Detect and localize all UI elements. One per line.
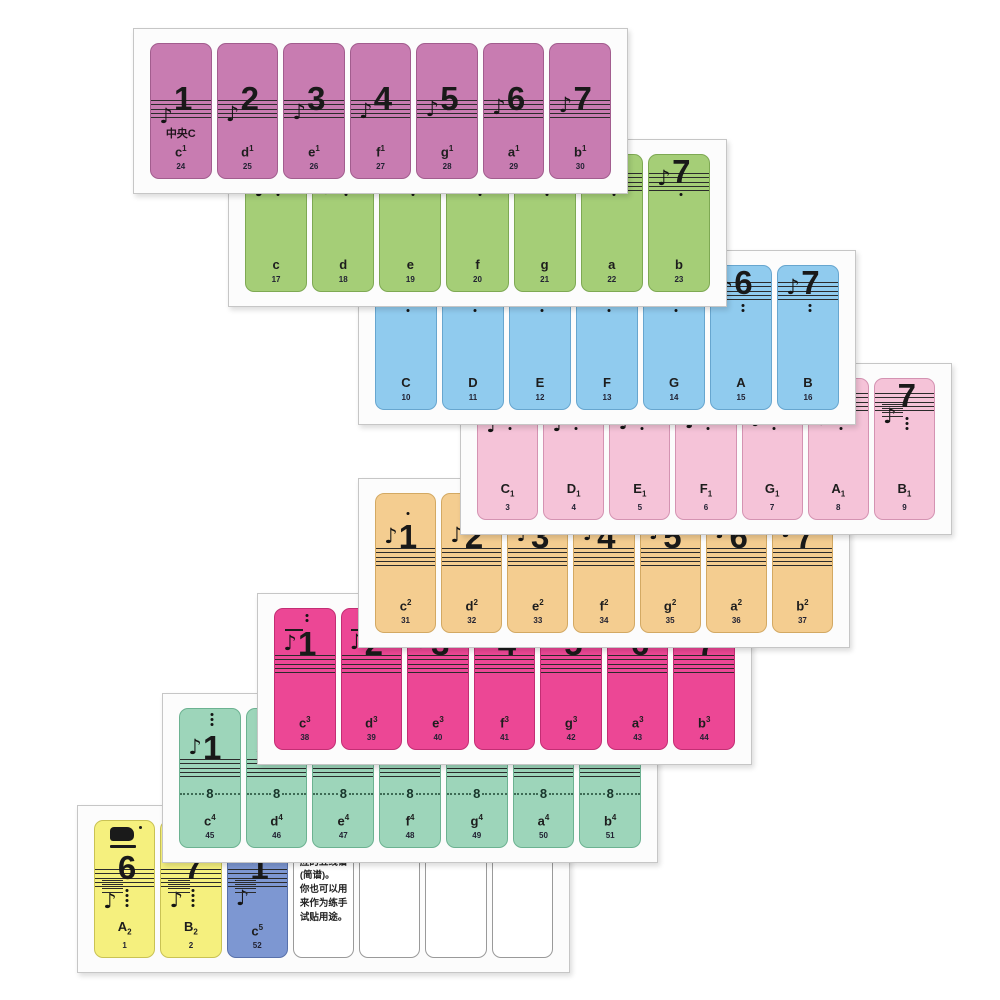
- staff-line: [313, 772, 373, 773]
- ledger-line: [882, 416, 903, 417]
- note-letter: c: [251, 923, 258, 938]
- staff-line: [408, 668, 468, 669]
- staff-line: [574, 561, 633, 562]
- key-number: 24: [151, 163, 211, 171]
- note-letter: a: [730, 598, 737, 613]
- key-number: 44: [674, 734, 734, 742]
- note-octave-script: 1: [708, 490, 712, 499]
- note-name: e3: [408, 716, 468, 729]
- ottava-dash-right: [482, 793, 506, 795]
- note-name: d3: [342, 716, 402, 729]
- note-name: c3: [275, 716, 335, 729]
- jianpu-number: 7: [573, 82, 591, 115]
- note-name: B2: [161, 920, 220, 937]
- staff-line: [641, 561, 700, 562]
- brand-logo-mark: [110, 827, 134, 841]
- note-octave-script: 1: [315, 144, 319, 153]
- note-octave-script: 1: [249, 144, 253, 153]
- ledger-line: [168, 888, 189, 889]
- note-octave-script: 3: [306, 715, 310, 724]
- note-letter: a: [508, 144, 515, 159]
- octave-dot: [575, 427, 578, 430]
- key-number: 17: [246, 276, 306, 284]
- key-number: 48: [380, 832, 440, 840]
- staff-line: [541, 672, 601, 673]
- key-sticker: 7♪B19: [874, 378, 935, 520]
- key-number: 11: [443, 394, 503, 402]
- octave-dot: [742, 304, 745, 307]
- octave-dots: [742, 304, 745, 312]
- product-photo-canvas: 1♪中央Cc1242♪d1253♪e1264♪f1275♪g1286♪a1297…: [0, 0, 1000, 1000]
- note-octave-script: 3: [504, 715, 508, 724]
- octave-dots: [211, 713, 214, 726]
- key-sticker: 7♪b130: [549, 43, 611, 179]
- ottava-8-marker: 8: [380, 787, 440, 800]
- staff-line: [773, 565, 832, 566]
- ottava-dash-left: [247, 793, 271, 795]
- key-sticker: 5♪g128: [416, 43, 478, 179]
- staff-line: [275, 664, 335, 665]
- note-octave-script: 3: [639, 715, 643, 724]
- jianpu-number: 5: [440, 82, 458, 115]
- note-letter: b: [675, 257, 683, 272]
- key-number: 2: [161, 942, 220, 950]
- note-name: A: [711, 376, 771, 389]
- staff-line: [773, 561, 832, 562]
- note-name: a1: [484, 145, 544, 158]
- ottava-8-marker: 8: [247, 787, 307, 800]
- note-octave-script: 3: [439, 715, 443, 724]
- jianpu-number: 1: [203, 731, 221, 764]
- note-octave-script: 1: [841, 490, 845, 499]
- key-number: 39: [342, 734, 402, 742]
- key-number: 46: [247, 832, 307, 840]
- note-name: A2: [95, 920, 154, 937]
- note-letter: d: [241, 144, 249, 159]
- note-letter: D: [567, 481, 576, 496]
- note-name: E1: [610, 482, 669, 499]
- staff-line: [508, 565, 567, 566]
- note-octave-script: 1: [642, 490, 646, 499]
- note-octave-script: 3: [573, 715, 577, 724]
- key-sticker: 3♪e126: [283, 43, 345, 179]
- staff-line: [508, 557, 567, 558]
- note-letter: b: [604, 813, 612, 828]
- key-sticker: 1♪8c445: [179, 708, 241, 848]
- note-name: b3: [674, 716, 734, 729]
- octave-dot: [306, 619, 309, 622]
- note-octave-script: 1: [515, 144, 519, 153]
- staff-line: [380, 768, 440, 769]
- note-name: F1: [676, 482, 735, 499]
- ledger-line: [102, 892, 123, 893]
- ottava-8-marker: 8: [580, 787, 640, 800]
- note-letter: A: [118, 919, 127, 934]
- ottava-8-marker: 8: [180, 787, 240, 800]
- note-letter: e: [407, 257, 414, 272]
- note-octave-script: 3: [706, 715, 710, 724]
- note-name: e: [380, 258, 440, 271]
- note-letter: a: [632, 715, 639, 730]
- octave-dot: [839, 427, 842, 430]
- note-letter: c: [272, 257, 279, 272]
- note-name: c1: [151, 145, 211, 158]
- octave-dot: [126, 889, 129, 892]
- key-number: 37: [773, 617, 832, 625]
- note-name: f: [447, 258, 507, 271]
- staff-line: [514, 768, 574, 769]
- note-name: c2: [376, 599, 435, 612]
- staff-line: [475, 668, 535, 669]
- eighth-note-icon: ♪: [359, 101, 372, 122]
- ottava-number: 8: [607, 787, 614, 800]
- octave-dot: [905, 427, 908, 430]
- note-name: d: [313, 258, 373, 271]
- note-name: b4: [580, 814, 640, 827]
- jianpu-number: 7: [672, 155, 690, 188]
- eighth-note-icon: ♪: [426, 99, 439, 120]
- octave-dot: [306, 614, 309, 617]
- note-octave-script: 2: [407, 598, 411, 607]
- staff-line: [707, 561, 766, 562]
- note-name: G: [644, 376, 704, 389]
- key-number: 34: [574, 617, 633, 625]
- key-number: 21: [515, 276, 575, 284]
- note-name: b: [649, 258, 709, 271]
- staff-line: [508, 561, 567, 562]
- key-number: 10: [376, 394, 436, 402]
- eighth-note-icon: ♪: [384, 526, 397, 547]
- note-letter: b: [574, 144, 582, 159]
- ottava-dash-left: [180, 793, 204, 795]
- ottava-dash-left: [447, 793, 471, 795]
- ottava-number: 8: [206, 787, 213, 800]
- key-number: 33: [508, 617, 567, 625]
- note-letter: A: [736, 375, 745, 390]
- note-name: f2: [574, 599, 633, 612]
- note-letter: C: [401, 375, 410, 390]
- staff-line: [649, 190, 709, 191]
- staff-line: [674, 668, 734, 669]
- octave-dots: [126, 889, 129, 907]
- note-octave-script: 1: [582, 144, 586, 153]
- staff-line: [442, 561, 501, 562]
- octave-dot: [126, 904, 129, 907]
- ledger-line: [168, 892, 189, 893]
- octave-dot: [211, 723, 214, 726]
- ledger-line: [102, 880, 123, 881]
- instruction-line: 来作为练手: [300, 897, 348, 911]
- staff-line: [180, 772, 240, 773]
- note-letter: d: [339, 257, 347, 272]
- note-letter: a: [608, 257, 615, 272]
- staff-line: [380, 776, 440, 777]
- note-octave-script: 4: [612, 813, 616, 822]
- note-letter: a: [538, 813, 545, 828]
- staff-line: [574, 565, 633, 566]
- key-number: 18: [313, 276, 373, 284]
- staff-line: [275, 672, 335, 673]
- note-name: g1: [417, 145, 477, 158]
- note-letter: B: [184, 919, 193, 934]
- brand-logo-icon: [108, 826, 142, 848]
- note-name: g4: [447, 814, 507, 827]
- instruction-line: 试贴用途。: [300, 911, 348, 925]
- note-octave-script: 4: [211, 813, 215, 822]
- note-name: e4: [313, 814, 373, 827]
- key-number: 19: [380, 276, 440, 284]
- note-name: f4: [380, 814, 440, 827]
- key-number: 50: [514, 832, 574, 840]
- sticker-sheet-1: 1♪中央Cc1242♪d1253♪e1264♪f1275♪g1286♪a1297…: [133, 28, 628, 194]
- note-octave-script: 4: [478, 813, 482, 822]
- note-name: C1: [478, 482, 537, 499]
- jianpu-number: 6: [734, 266, 752, 299]
- staff-line: [376, 561, 435, 562]
- ottava-number: 8: [340, 787, 347, 800]
- staff-line: [313, 776, 373, 777]
- note-name: a: [582, 258, 642, 271]
- note-octave-script: 3: [373, 715, 377, 724]
- key-number: 27: [351, 163, 411, 171]
- octave-dot: [773, 427, 776, 430]
- staff-line: [247, 772, 307, 773]
- note-octave-script: 2: [473, 598, 477, 607]
- note-name: d1: [218, 145, 278, 158]
- key-number: 40: [408, 734, 468, 742]
- jianpu-number: 3: [307, 82, 325, 115]
- staff-line: [180, 768, 240, 769]
- staff-line: [608, 668, 668, 669]
- note-letter: g: [441, 144, 449, 159]
- jianpu-number: 4: [374, 82, 392, 115]
- key-number: 41: [475, 734, 535, 742]
- staff-line: [674, 672, 734, 673]
- octave-dots: [192, 889, 195, 907]
- key-number: 12: [510, 394, 570, 402]
- note-octave-script: 1: [510, 490, 514, 499]
- note-octave-script: 2: [804, 598, 808, 607]
- note-letter: g: [541, 257, 549, 272]
- note-name: a3: [608, 716, 668, 729]
- key-number: 26: [284, 163, 344, 171]
- eighth-note-icon: ♪: [657, 168, 670, 189]
- key-number: 30: [550, 163, 610, 171]
- note-letter: E: [536, 375, 545, 390]
- note-octave-script: 2: [604, 598, 608, 607]
- note-name: D1: [544, 482, 603, 499]
- key-number: 1: [95, 942, 154, 950]
- note-name: c5: [228, 924, 287, 937]
- staff-line: [514, 772, 574, 773]
- octave-dot: [680, 193, 683, 196]
- staff-line: [447, 776, 507, 777]
- octave-dot: [809, 309, 812, 312]
- note-name: a4: [514, 814, 574, 827]
- staff-line: [342, 668, 402, 669]
- note-octave-script: 1: [907, 490, 911, 499]
- note-letter: g: [664, 598, 672, 613]
- note-letter: c: [400, 598, 407, 613]
- jianpu-number: 7: [801, 266, 819, 299]
- staff-line: [641, 565, 700, 566]
- ottava-dash-right: [616, 793, 640, 795]
- note-letter: e: [337, 813, 344, 828]
- ottava-dash-right: [349, 793, 373, 795]
- key-number: 47: [313, 832, 373, 840]
- key-number: 5: [610, 504, 669, 512]
- key-sticker: 1♪中央Cc124: [150, 43, 212, 179]
- octave-dot: [742, 309, 745, 312]
- key-number: 22: [582, 276, 642, 284]
- note-letter: g: [565, 715, 573, 730]
- eighth-note-icon: ♪: [283, 633, 296, 654]
- staff-line: [247, 776, 307, 777]
- note-letter: f: [475, 257, 479, 272]
- note-octave-script: 2: [127, 928, 131, 937]
- staff-line: [376, 557, 435, 558]
- note-letter: A: [831, 481, 840, 496]
- note-letter: F: [700, 481, 708, 496]
- jianpu-number: 1: [399, 520, 417, 553]
- note-name: c4: [180, 814, 240, 827]
- note-octave-script: 1: [449, 144, 453, 153]
- staff-line: [447, 768, 507, 769]
- key-sticker: 7♪b23: [648, 154, 710, 292]
- key-number: 36: [707, 617, 766, 625]
- octave-dot: [608, 309, 611, 312]
- middle-c-label: 中央C: [151, 125, 211, 141]
- ledger-line: [102, 888, 123, 889]
- octave-dot: [675, 309, 678, 312]
- key-number: 13: [577, 394, 637, 402]
- key-number: 38: [275, 734, 335, 742]
- note-name: a2: [707, 599, 766, 612]
- ottava-number: 8: [273, 787, 280, 800]
- ottava-number: 8: [540, 787, 547, 800]
- eighth-note-icon: ♪: [292, 102, 305, 123]
- staff-line: [608, 664, 668, 665]
- eighth-note-icon: ♪: [559, 95, 572, 116]
- staff-line: [342, 664, 402, 665]
- key-number: 7: [743, 504, 802, 512]
- key-number: 4: [544, 504, 603, 512]
- ledger-line: [235, 888, 256, 889]
- key-number: 28: [417, 163, 477, 171]
- jianpu-number: 1: [174, 82, 192, 115]
- staff-line: [550, 117, 610, 118]
- note-name: f3: [475, 716, 535, 729]
- staff-line: [674, 664, 734, 665]
- octave-dot: [192, 894, 195, 897]
- key-sticker: 4♪f127: [350, 43, 412, 179]
- eighth-note-icon: ♪: [159, 106, 172, 127]
- ledger-line: [168, 884, 189, 885]
- octave-dot: [192, 889, 195, 892]
- staff-line: [408, 672, 468, 673]
- octave-dot: [541, 309, 544, 312]
- ledger-line: [882, 412, 903, 413]
- eighth-note-icon: ♪: [786, 277, 799, 298]
- staff-line: [447, 772, 507, 773]
- staff-line: [475, 664, 535, 665]
- ottava-dash-right: [282, 793, 306, 795]
- ottava-dash-right: [416, 793, 440, 795]
- octave-dots: [905, 417, 908, 430]
- ledger-lines: [102, 880, 123, 893]
- staff-line: [247, 768, 307, 769]
- note-letter: B: [803, 375, 812, 390]
- note-name: A1: [809, 482, 868, 499]
- ottava-8-marker: 8: [447, 787, 507, 800]
- eighth-note-icon: ♪: [226, 104, 239, 125]
- note-name: D: [443, 376, 503, 389]
- note-octave-script: 2: [672, 598, 676, 607]
- jianpu-number: 1: [298, 627, 316, 660]
- note-name: g3: [541, 716, 601, 729]
- note-letter: b: [796, 598, 804, 613]
- staff-line: [342, 672, 402, 673]
- octave-dots: [809, 304, 812, 312]
- octave-dot: [905, 422, 908, 425]
- note-name: B1: [875, 482, 934, 499]
- key-number: 20: [447, 276, 507, 284]
- eighth-note-icon: ♪: [103, 891, 116, 912]
- ledger-line: [882, 404, 903, 405]
- note-octave-script: 4: [410, 813, 414, 822]
- note-name: b2: [773, 599, 832, 612]
- ledger-lines: [882, 404, 903, 417]
- octave-dot: [126, 899, 129, 902]
- octave-dot: [126, 894, 129, 897]
- key-number: 16: [778, 394, 838, 402]
- eighth-note-icon: ♪: [492, 97, 505, 118]
- key-sticker: 2♪d125: [217, 43, 279, 179]
- ottava-8-marker: 8: [313, 787, 373, 800]
- staff-line: [574, 557, 633, 558]
- note-name: C: [376, 376, 436, 389]
- key-number: 14: [644, 394, 704, 402]
- instruction-line: 你也可以用: [300, 883, 348, 897]
- note-octave-script: 4: [345, 813, 349, 822]
- staff-line: [475, 672, 535, 673]
- ottava-dash-left: [514, 793, 538, 795]
- octave-dots: [406, 512, 409, 515]
- note-octave-script: 1: [775, 490, 779, 499]
- key-number: 51: [580, 832, 640, 840]
- note-octave-script: 4: [278, 813, 282, 822]
- note-letter: C: [501, 481, 510, 496]
- key-sticker: 6♪A21: [94, 820, 155, 958]
- staff-line: [313, 768, 373, 769]
- ottava-8-marker: 8: [514, 787, 574, 800]
- note-name: E: [510, 376, 570, 389]
- note-octave-script: 1: [380, 144, 384, 153]
- key-number: 3: [478, 504, 537, 512]
- staff-line: [275, 668, 335, 669]
- key-number: 25: [218, 163, 278, 171]
- note-letter: b: [698, 715, 706, 730]
- note-letter: G: [765, 481, 775, 496]
- staff-line: [580, 768, 640, 769]
- staff-line: [773, 557, 832, 558]
- staff-line: [541, 668, 601, 669]
- ledger-dash: [285, 629, 303, 631]
- staff-line: [376, 565, 435, 566]
- ledger-line: [168, 880, 189, 881]
- note-octave-script: 2: [539, 598, 543, 607]
- staff-line: [580, 772, 640, 773]
